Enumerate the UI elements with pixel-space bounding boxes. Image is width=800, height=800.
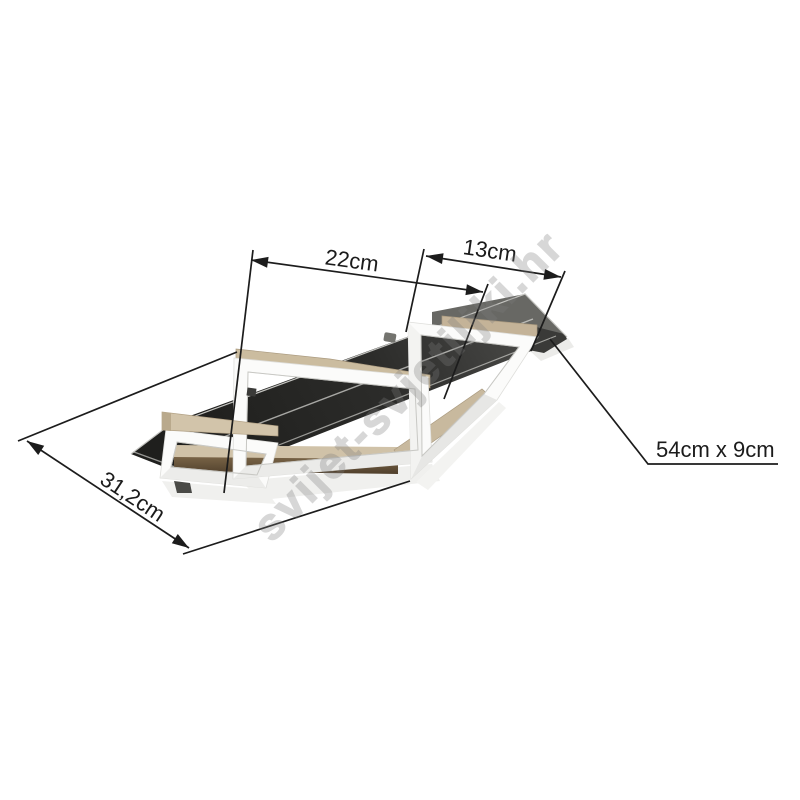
svg-text:54cm x 9cm: 54cm x 9cm <box>656 437 775 462</box>
